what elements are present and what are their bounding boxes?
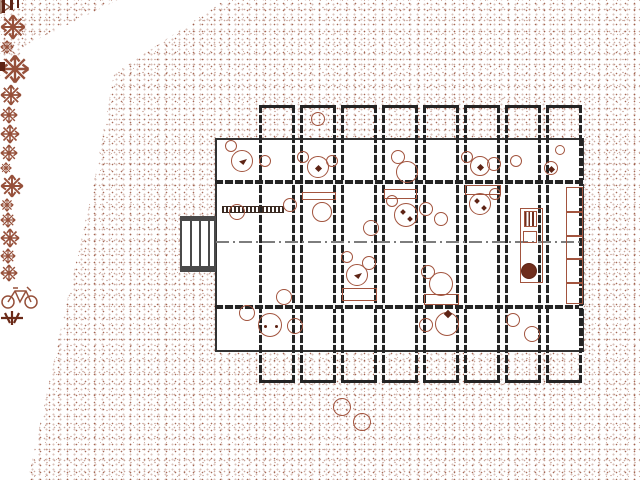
dot [264,325,267,328]
bird-glyph [354,273,362,279]
table-icon [429,272,453,296]
deck-plank-2 [208,221,210,266]
table-icon [394,203,418,227]
table-icon [346,264,368,286]
chair-icon [419,202,433,216]
shelf-line [567,211,582,213]
bed-counter-rect [384,189,417,199]
chair-icon [276,289,292,305]
deck-plank-0 [190,221,192,266]
chair-icon [287,318,303,334]
table-icon [435,312,459,336]
chair-icon [363,220,379,236]
site-plan-canvas [0,0,640,480]
chair-icon [419,318,433,332]
furniture-glyph [444,310,452,318]
table-icon [258,313,282,337]
chair-icon [544,161,558,175]
furniture-glyph [481,205,487,211]
bed-counter-rect [465,185,501,195]
deck-plank-1 [199,221,201,266]
table-icon [312,202,332,222]
stove-icon [524,211,537,227]
chair-icon [555,145,565,155]
chair-icon [326,155,338,167]
furniture-layer [0,0,640,480]
table-icon [231,150,253,172]
chair-icon [283,198,297,212]
bed-counter-rect [302,192,336,200]
chair-icon [487,157,501,171]
furniture-glyph [477,164,484,171]
bed-counter-rect [342,288,377,301]
chair-icon [225,140,237,152]
table-icon [396,161,418,183]
chair-icon [341,251,353,263]
shelf-unit [566,187,583,304]
chair-icon [434,212,448,226]
entry-deck [180,216,216,272]
furniture-glyph [315,165,322,172]
furniture-glyph [474,198,480,204]
sink-icon [523,231,537,243]
furniture-glyph [400,209,406,215]
chair-icon [524,326,540,342]
shelf-line [567,282,582,284]
table-icon [469,193,491,215]
shelf-line [567,235,582,237]
bird-glyph [239,159,247,165]
shelf-line [567,258,582,260]
dot [275,325,278,328]
chair-icon [239,305,255,321]
spiral-stair-icon [521,263,537,279]
bed-counter-rect [424,294,459,305]
chair-icon [510,155,522,167]
chair-icon [311,112,325,126]
furniture-glyph [548,166,555,173]
chair-icon [229,204,245,220]
chair-icon [506,313,520,327]
chair-icon [259,155,271,167]
furniture-glyph [407,216,413,222]
